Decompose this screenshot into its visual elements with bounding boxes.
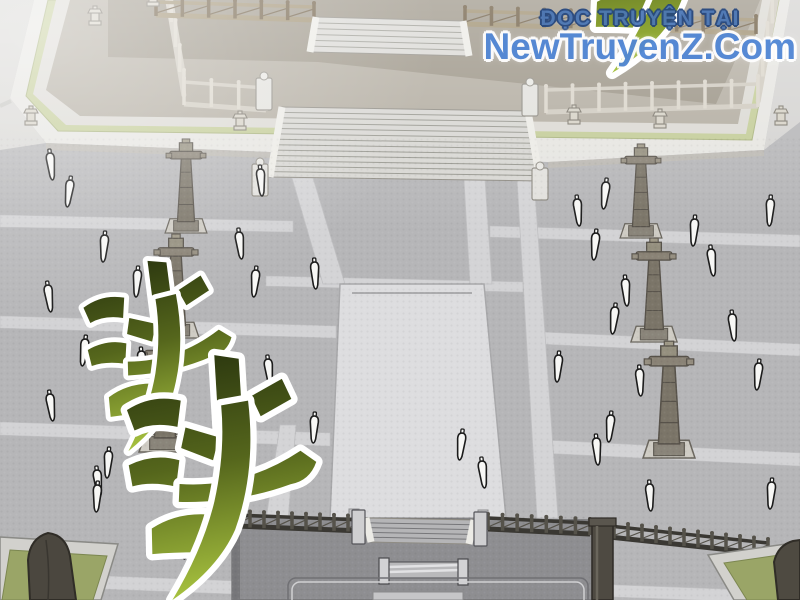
comic-page: ĐỌC TRUYỆN TẠI NewTruyenZ.Com bbox=[0, 0, 800, 600]
palace-courtyard-illustration bbox=[0, 0, 800, 600]
